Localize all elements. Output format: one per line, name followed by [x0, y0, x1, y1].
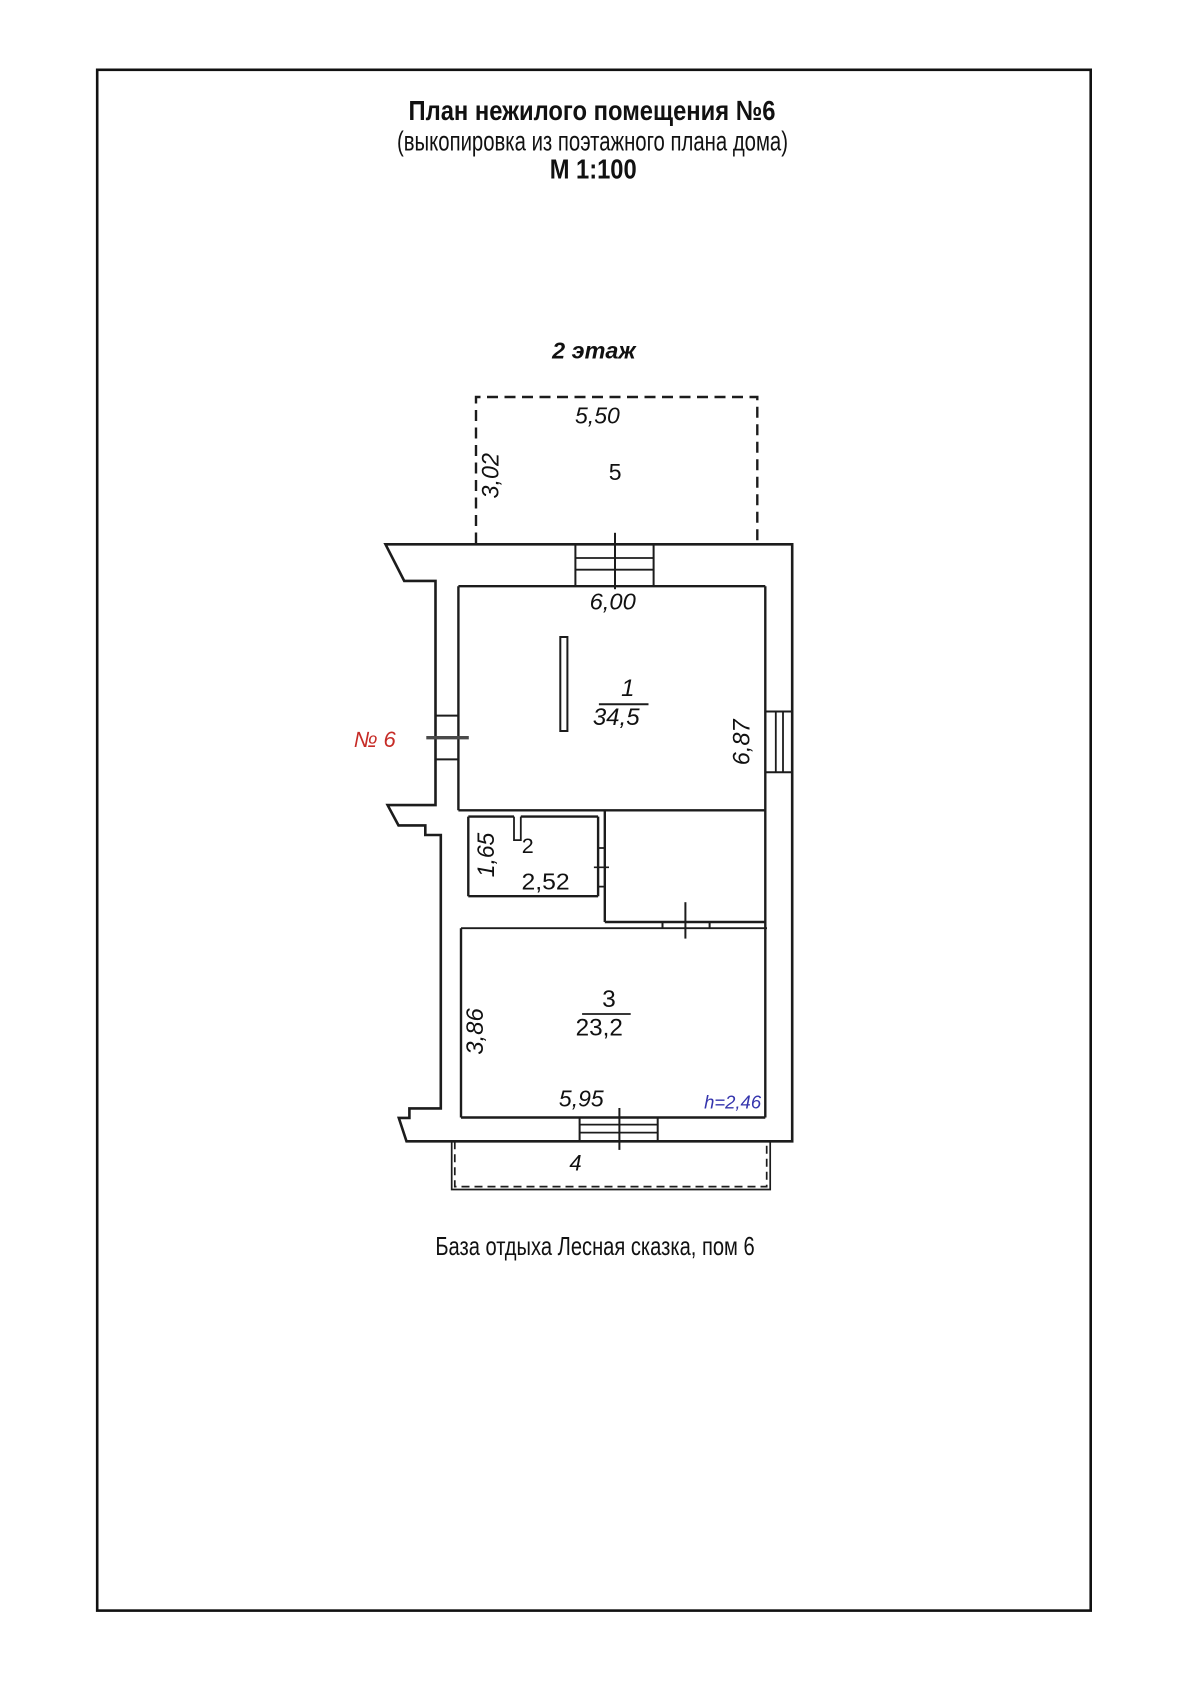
- svg-text:2,52: 2,52: [522, 868, 570, 894]
- svg-text:h=2,46: h=2,46: [704, 1092, 762, 1112]
- svg-text:2 этаж: 2 этаж: [551, 338, 637, 364]
- svg-text:М 1:100: М 1:100: [550, 154, 637, 185]
- svg-text:2: 2: [522, 834, 534, 858]
- svg-text:3,02: 3,02: [478, 453, 505, 499]
- svg-text:№ 6: № 6: [354, 727, 397, 752]
- svg-text:6,87: 6,87: [729, 718, 756, 765]
- svg-text:База отдыха Лесная сказка, пом: База отдыха Лесная сказка, пом 6: [435, 1231, 754, 1261]
- svg-text:5,50: 5,50: [575, 403, 620, 429]
- svg-text:4: 4: [569, 1151, 581, 1176]
- svg-text:6,00: 6,00: [590, 589, 636, 615]
- svg-text:34,5: 34,5: [593, 704, 640, 731]
- svg-text:5,95: 5,95: [559, 1086, 604, 1112]
- svg-text:3: 3: [602, 986, 616, 1013]
- svg-text:1: 1: [621, 675, 634, 702]
- svg-text:1,65: 1,65: [473, 832, 500, 877]
- svg-text:23,2: 23,2: [576, 1015, 623, 1042]
- svg-text:(выкопировка из поэтажного пла: (выкопировка из поэтажного плана дома): [397, 126, 788, 157]
- svg-text:5: 5: [609, 459, 622, 485]
- svg-text:План нежилого помещения №6: План нежилого помещения №6: [409, 95, 776, 126]
- svg-text:3,86: 3,86: [462, 1008, 489, 1055]
